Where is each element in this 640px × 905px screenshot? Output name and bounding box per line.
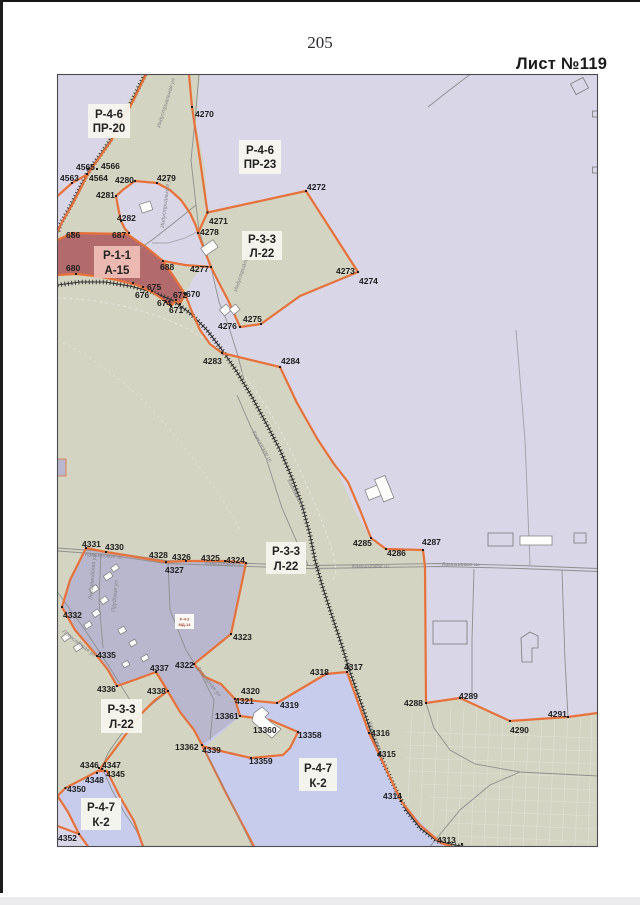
svg-text:13358: 13358 <box>298 730 322 740</box>
svg-text:4275: 4275 <box>243 314 262 324</box>
svg-text:А-15: А-15 <box>105 265 131 277</box>
svg-text:ПР-23: ПР-23 <box>244 159 277 171</box>
svg-text:4314: 4314 <box>383 791 402 801</box>
svg-text:676: 676 <box>135 290 149 300</box>
svg-text:4274: 4274 <box>359 276 378 286</box>
svg-text:4317: 4317 <box>344 662 363 672</box>
svg-text:13359: 13359 <box>249 756 273 766</box>
svg-text:670: 670 <box>186 289 200 299</box>
svg-text:4319: 4319 <box>280 700 299 710</box>
svg-text:4287: 4287 <box>422 537 441 547</box>
svg-text:Р-4-6: Р-4-6 <box>246 145 274 157</box>
svg-text:4321: 4321 <box>235 696 254 706</box>
svg-text:13361: 13361 <box>215 711 239 721</box>
svg-text:Камышовое ш.: Камышовое ш. <box>442 562 480 568</box>
svg-text:4270: 4270 <box>195 109 214 119</box>
svg-text:4335: 4335 <box>97 650 116 660</box>
svg-text:4563: 4563 <box>60 173 79 183</box>
svg-text:4326: 4326 <box>172 552 191 562</box>
svg-text:686: 686 <box>66 230 80 240</box>
svg-text:4330: 4330 <box>105 542 124 552</box>
svg-text:4316: 4316 <box>371 728 390 738</box>
svg-text:4281: 4281 <box>96 190 115 200</box>
svg-text:4283: 4283 <box>203 356 222 366</box>
svg-text:4284: 4284 <box>281 356 300 366</box>
svg-text:Камышовое ш.: Камышовое ш. <box>352 564 390 570</box>
svg-text:4291: 4291 <box>548 709 567 719</box>
svg-text:4345: 4345 <box>106 769 125 779</box>
svg-text:4282: 4282 <box>117 213 136 223</box>
svg-text:МД-14: МД-14 <box>179 622 192 627</box>
svg-text:4278: 4278 <box>200 227 219 237</box>
svg-text:Р-3-3: Р-3-3 <box>248 234 276 246</box>
svg-text:4566: 4566 <box>101 161 120 171</box>
svg-text:4323: 4323 <box>233 632 252 642</box>
svg-text:688: 688 <box>160 262 174 272</box>
svg-text:680: 680 <box>66 263 80 273</box>
svg-text:4315: 4315 <box>377 749 396 759</box>
svg-text:4272: 4272 <box>307 182 326 192</box>
svg-text:Л-22: Л-22 <box>109 719 134 731</box>
svg-text:13360: 13360 <box>253 725 277 735</box>
svg-text:4565: 4565 <box>76 162 95 172</box>
svg-text:4285: 4285 <box>353 538 372 548</box>
svg-text:687: 687 <box>112 230 126 240</box>
svg-text:4338: 4338 <box>147 686 166 696</box>
svg-text:4352: 4352 <box>58 833 77 843</box>
svg-text:4348: 4348 <box>85 775 104 785</box>
svg-text:4273: 4273 <box>336 266 355 276</box>
svg-text:4320: 4320 <box>241 686 260 696</box>
svg-text:Р-3-3: Р-3-3 <box>107 704 135 716</box>
svg-text:4346: 4346 <box>80 760 99 770</box>
svg-text:4350: 4350 <box>67 784 86 794</box>
svg-text:4327: 4327 <box>165 565 184 575</box>
svg-text:4286: 4286 <box>387 548 406 558</box>
svg-text:4279: 4279 <box>157 173 176 183</box>
svg-text:Р-4-7: Р-4-7 <box>304 763 332 775</box>
svg-text:4564: 4564 <box>89 173 108 183</box>
svg-text:Л-22: Л-22 <box>250 248 275 260</box>
svg-text:4332: 4332 <box>63 610 82 620</box>
svg-text:ПР-20: ПР-20 <box>93 123 126 135</box>
svg-text:Л-22: Л-22 <box>274 561 299 573</box>
svg-text:4271: 4271 <box>209 216 228 226</box>
svg-text:4339: 4339 <box>202 745 221 755</box>
svg-text:4290: 4290 <box>510 725 529 735</box>
svg-text:К-2: К-2 <box>92 817 109 829</box>
svg-text:4324: 4324 <box>226 555 245 565</box>
svg-text:4289: 4289 <box>459 691 478 701</box>
svg-text:4277: 4277 <box>190 264 209 274</box>
svg-text:13362: 13362 <box>175 742 199 752</box>
svg-text:4313: 4313 <box>437 835 456 845</box>
svg-text:4331: 4331 <box>82 539 101 549</box>
svg-text:4318: 4318 <box>310 667 329 677</box>
svg-text:Р-4-3: Р-4-3 <box>180 617 191 622</box>
svg-text:4276: 4276 <box>218 321 237 331</box>
svg-text:К-2: К-2 <box>309 778 326 790</box>
svg-text:671: 671 <box>169 305 183 315</box>
svg-text:4325: 4325 <box>201 553 220 563</box>
svg-text:Р-3-3: Р-3-3 <box>272 546 300 558</box>
svg-text:Р-4-6: Р-4-6 <box>95 109 123 121</box>
svg-text:Р-1-1: Р-1-1 <box>103 250 132 262</box>
svg-text:Р-4-7: Р-4-7 <box>87 802 115 814</box>
svg-text:4328: 4328 <box>149 550 168 560</box>
svg-text:4288: 4288 <box>404 698 423 708</box>
svg-text:4336: 4336 <box>97 684 116 694</box>
svg-text:4280: 4280 <box>115 175 134 185</box>
svg-text:4337: 4337 <box>150 663 169 673</box>
svg-text:4322: 4322 <box>175 660 194 670</box>
